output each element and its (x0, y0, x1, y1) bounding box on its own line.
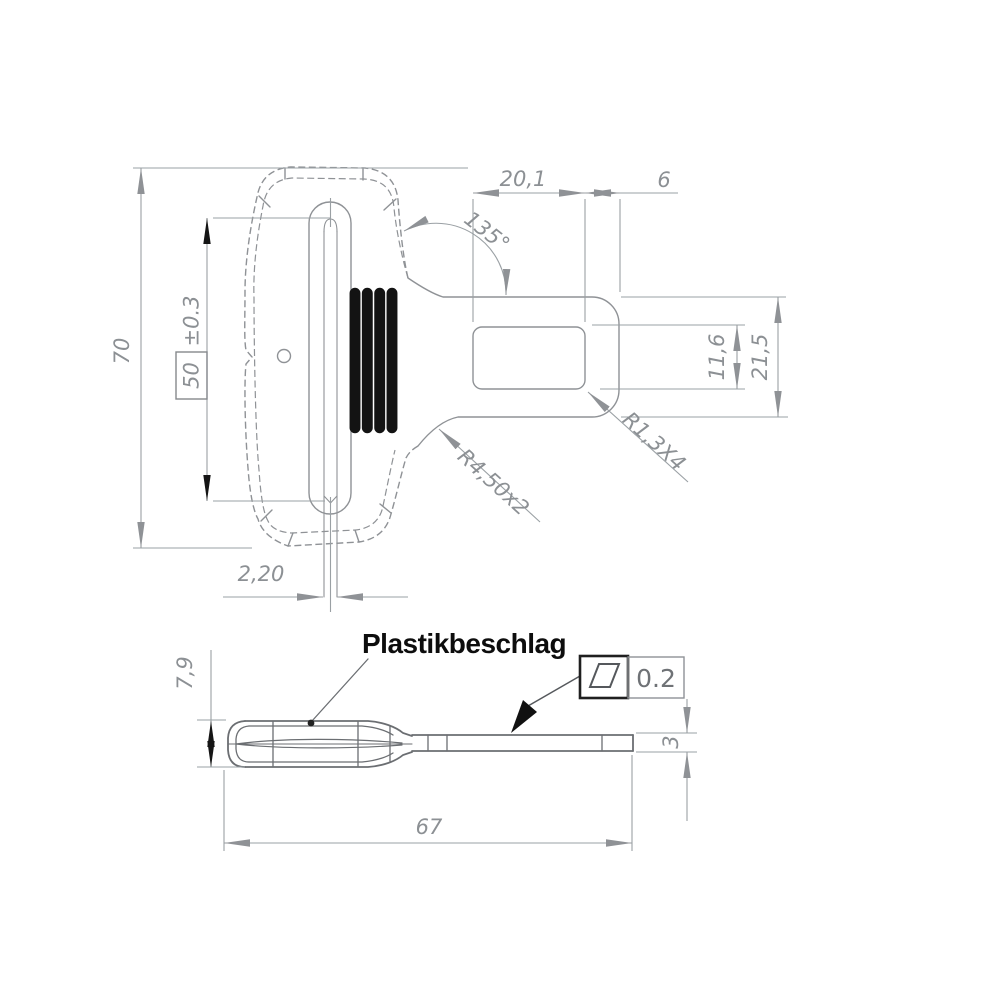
dim-neck-angle-label: 135° (460, 207, 515, 257)
grip-rib (378, 291, 382, 430)
grip-rib (353, 291, 357, 430)
grip-ribs (353, 291, 394, 430)
flatness-leader-arrow (511, 700, 537, 733)
dim-slit-width-label: 2,20 (238, 562, 285, 586)
dim-tongue-width-label: 21,5 (748, 334, 772, 381)
callout-neck-fillet-radius-label: R4,50x2 (453, 444, 534, 520)
dim-overall-height: 70 (110, 168, 468, 548)
flatness-value-label: 0.2 (636, 664, 676, 693)
dim-slit-length-tolerance-label: ±0.3 (180, 296, 204, 347)
tongue-latch-slot (473, 327, 585, 389)
belt-slit (309, 198, 351, 612)
technical-drawing-sheet: 70 50 ±0.3 2,20 20,1 6 (0, 0, 1000, 1000)
tongue-plate (408, 278, 619, 446)
dim-plate-thickness: 3 (636, 699, 697, 821)
parallelogram-flatness-icon (590, 664, 619, 687)
grip-rib (390, 291, 394, 430)
dim-slot-to-tip: 6 (585, 168, 678, 292)
slit-outer-contour (309, 202, 351, 514)
dim-slit-width: 2,20 (223, 562, 408, 597)
pilot-hole (278, 350, 291, 363)
dim-grip-thickness-label: 7,9 (173, 656, 197, 689)
grip-rib (365, 291, 369, 430)
tongue-contour (408, 278, 619, 446)
dim-slit-length-label: 50 (180, 362, 204, 389)
dim-slot-to-tip-label: 6 (657, 168, 670, 192)
callout-neck-fillet-radius: R4,50x2 (439, 429, 540, 522)
flatness-symbol-cell (580, 656, 628, 698)
flatness-control-frame: 0.2 (511, 656, 684, 733)
callout-slot-corner-radius: R1,3X4 (588, 392, 690, 482)
side-grip-outline (228, 721, 412, 767)
dim-overall-height-label: 70 (110, 338, 134, 365)
side-view: 7,9 67 3 0.2 P (173, 628, 697, 851)
dim-plate-thickness-label: 3 (659, 735, 683, 748)
dim-overall-length-label: 67 (416, 815, 443, 839)
side-tongue-plate (412, 735, 633, 751)
dim-slit-length: 50 ±0.3 (176, 218, 331, 501)
drawing-canvas: 70 50 ±0.3 2,20 20,1 6 (0, 0, 1000, 1000)
dim-tongue-slot-width: 11,6 (592, 325, 745, 389)
dim-grip-thickness: 7,9 (173, 650, 245, 767)
front-view: 70 50 ±0.3 2,20 20,1 6 (110, 167, 788, 612)
dim-neck-angle: 135° (404, 207, 514, 295)
leader-dot (308, 720, 315, 727)
part-name-label: Plastikbeschlag (362, 628, 566, 659)
dim-tongue-slot-width-label: 11,6 (705, 334, 729, 381)
dim-tongue-slot-length-label: 20,1 (500, 167, 547, 191)
dim-overall-length: 67 (224, 755, 632, 851)
